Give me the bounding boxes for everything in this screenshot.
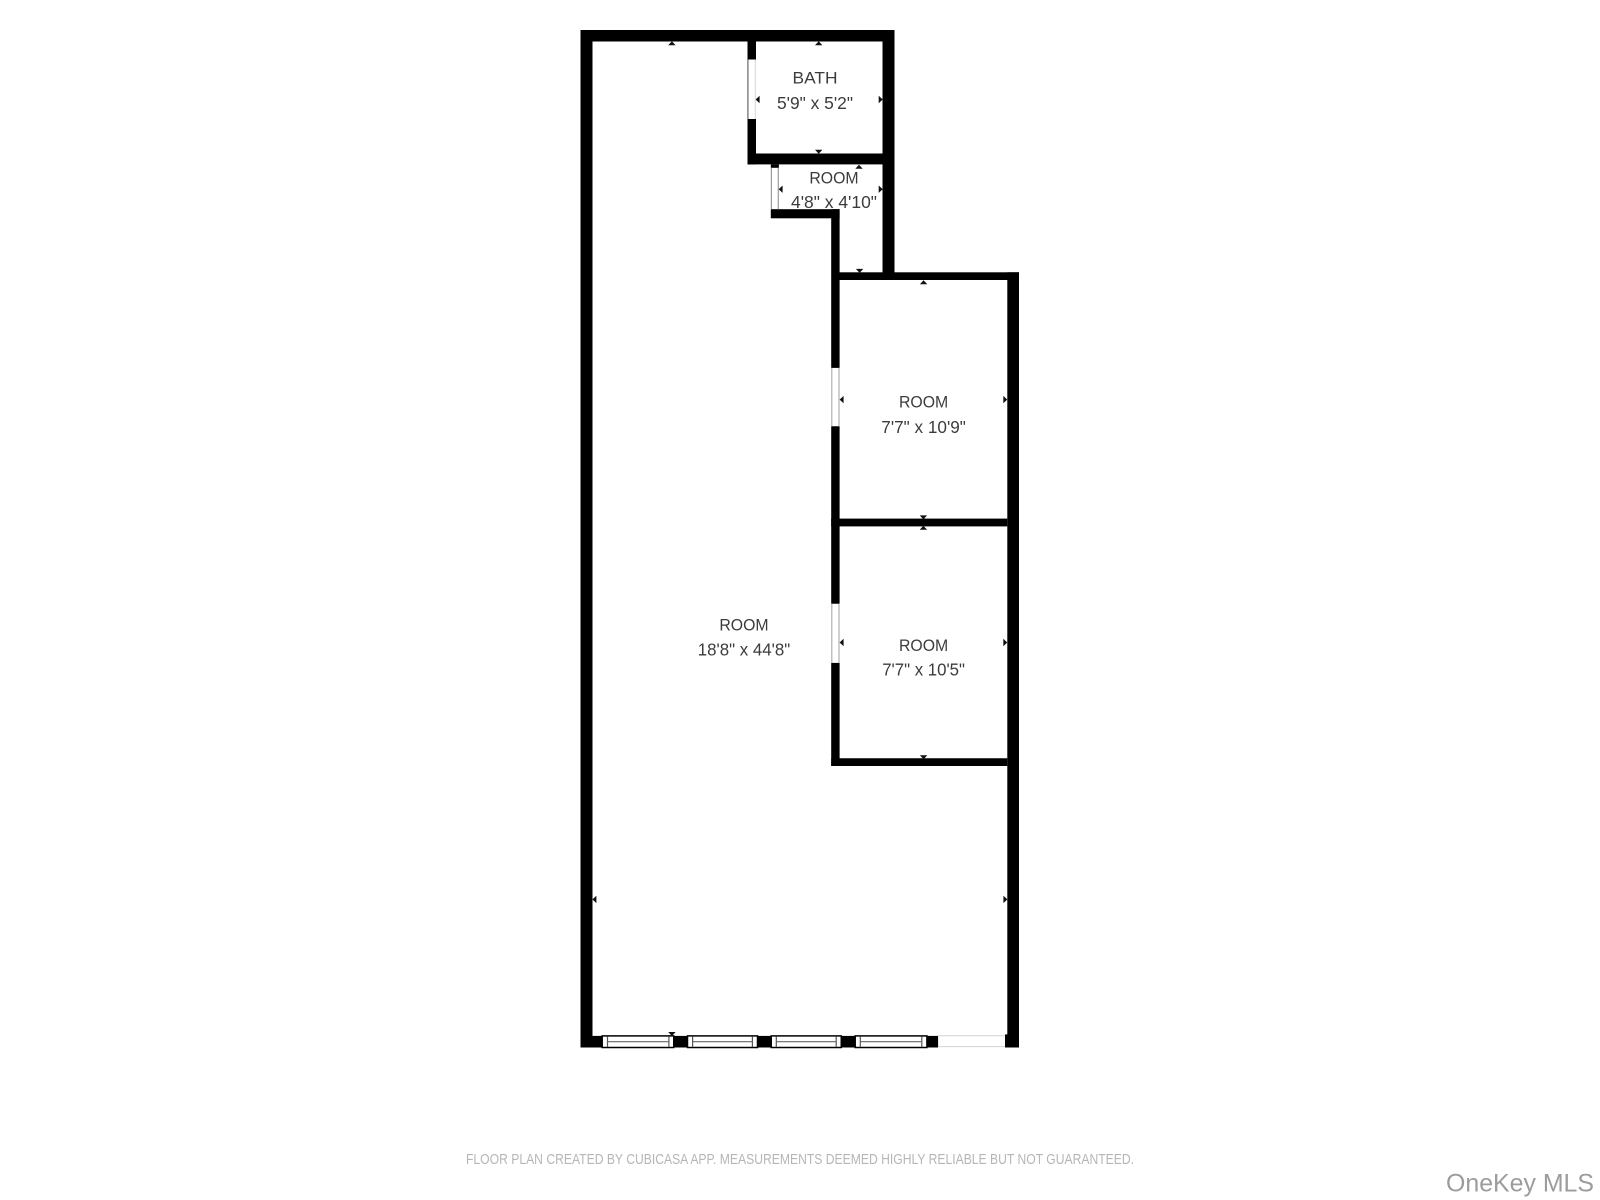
svg-text:18'8" x 44'8": 18'8" x 44'8" (698, 640, 791, 660)
svg-text:7'7" x 10'5": 7'7" x 10'5" (882, 660, 965, 680)
svg-text:7'7" x 10'9": 7'7" x 10'9" (881, 417, 966, 437)
svg-text:ROOM: ROOM (899, 636, 948, 655)
svg-text:ROOM: ROOM (809, 169, 858, 188)
svg-text:4'8" x 4'10": 4'8" x 4'10" (791, 192, 877, 212)
svg-text:OneKey MLS: OneKey MLS (1446, 1170, 1594, 1197)
svg-text:FLOOR PLAN CREATED BY CUBICASA: FLOOR PLAN CREATED BY CUBICASA APP. MEAS… (466, 1152, 1134, 1168)
svg-text:5'9" x 5'2": 5'9" x 5'2" (777, 93, 853, 113)
svg-text:ROOM: ROOM (719, 616, 768, 635)
svg-text:ROOM: ROOM (899, 393, 948, 412)
svg-text:BATH: BATH (793, 69, 838, 88)
